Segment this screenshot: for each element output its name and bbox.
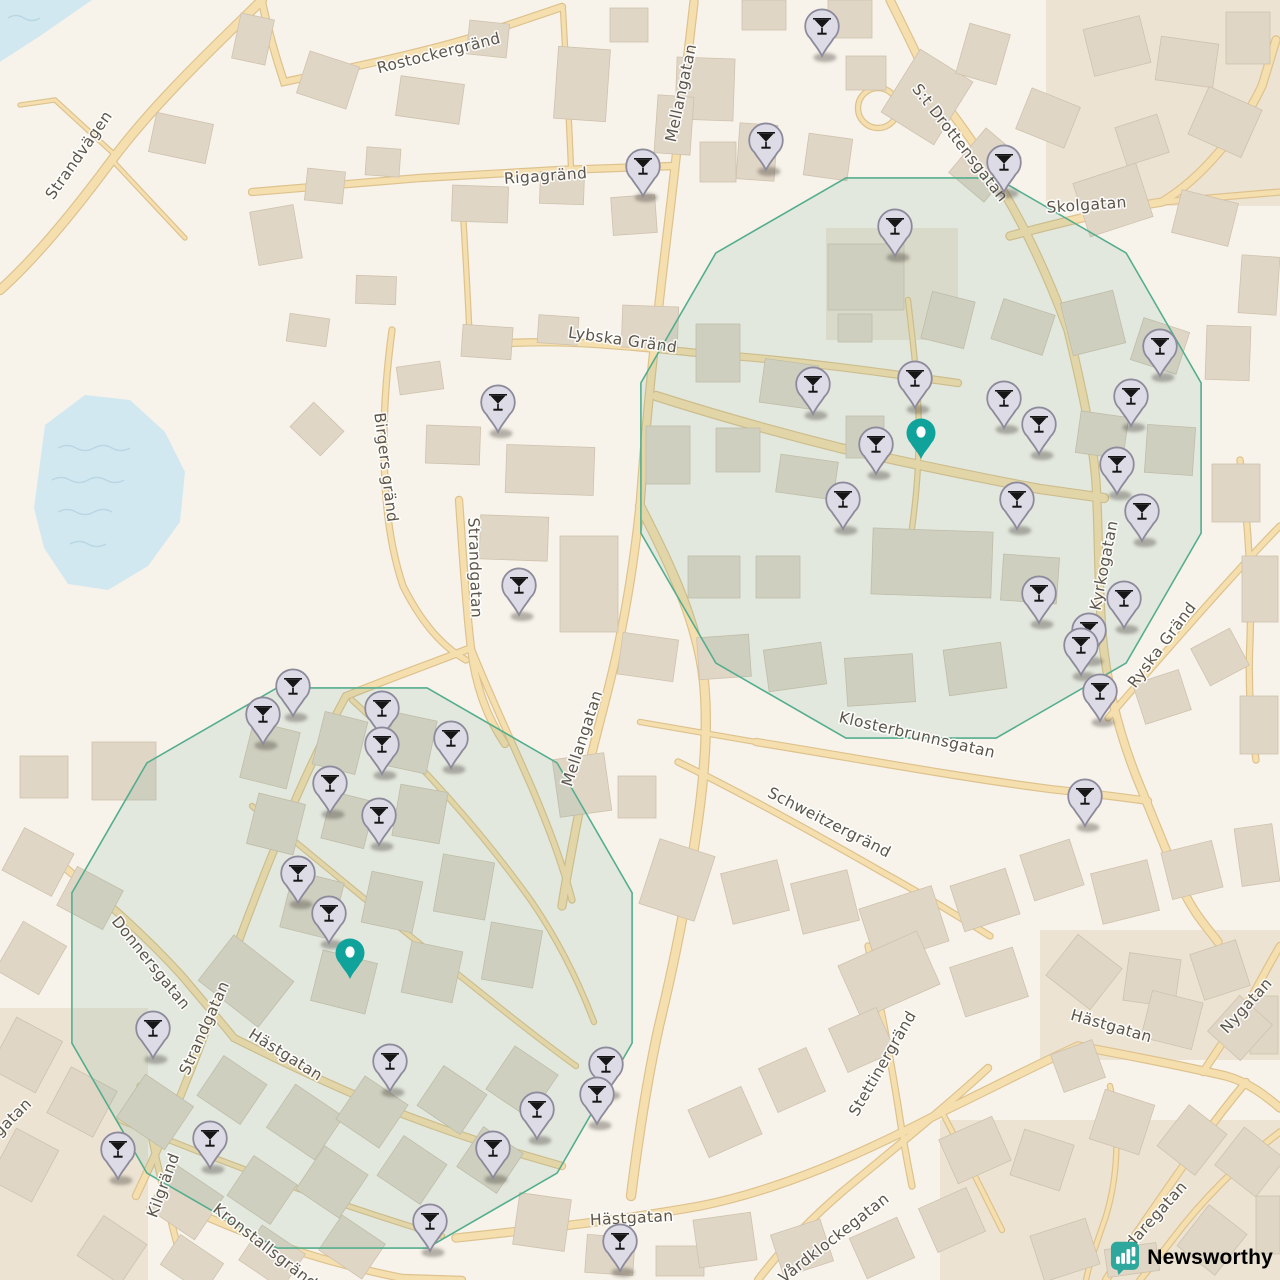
building xyxy=(425,425,480,465)
map-stage: StrandvägenRostockergrändRigagrändMellan… xyxy=(0,0,1280,1280)
building xyxy=(742,0,786,30)
building xyxy=(356,275,397,304)
building xyxy=(461,324,513,359)
building xyxy=(1240,696,1278,754)
building xyxy=(479,515,548,561)
building xyxy=(396,76,465,125)
building xyxy=(693,1212,757,1268)
building xyxy=(505,444,595,495)
building xyxy=(554,46,611,121)
street-label: Strandgatan xyxy=(464,517,485,618)
building xyxy=(617,632,678,681)
building xyxy=(1212,464,1260,522)
building xyxy=(610,8,648,42)
building xyxy=(1242,556,1278,622)
building xyxy=(1238,255,1280,316)
map-canvas[interactable]: StrandvägenRostockergrändRigagrändMellan… xyxy=(0,0,1280,1280)
building xyxy=(451,185,508,223)
building xyxy=(250,205,303,266)
building xyxy=(1234,824,1280,887)
building xyxy=(365,147,401,177)
brand-wordmark: Newsworthy xyxy=(1147,1246,1273,1270)
building xyxy=(1155,36,1219,88)
building xyxy=(700,142,736,182)
building xyxy=(803,133,852,181)
building xyxy=(560,536,618,632)
building xyxy=(304,168,345,204)
building xyxy=(513,1193,572,1252)
newsworthy-watermark[interactable]: Newsworthy xyxy=(1106,1239,1277,1277)
building xyxy=(1205,325,1251,381)
building xyxy=(286,313,330,346)
building xyxy=(396,361,443,395)
building xyxy=(846,56,886,90)
newsworthy-logo-icon xyxy=(1110,1241,1140,1275)
building xyxy=(1226,12,1270,64)
building xyxy=(20,756,68,798)
building xyxy=(618,776,656,818)
